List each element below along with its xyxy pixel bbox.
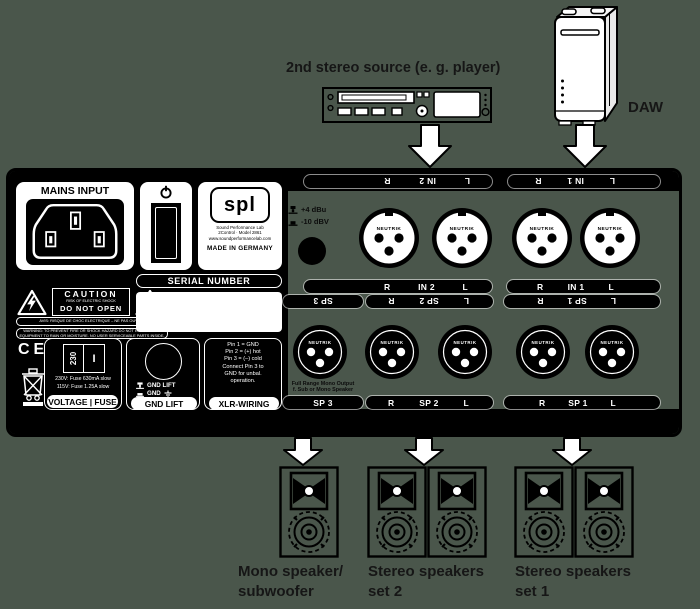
sp2-label-strip-top: L SP 2 R [366, 295, 493, 308]
in2-label-strip-top: L IN 2 R [304, 175, 492, 188]
xlr-output-sp2-l[interactable]: NEUTRIK [437, 324, 493, 380]
power-section [140, 182, 192, 270]
xlr-output-sp3[interactable]: NEUTRIK [292, 324, 348, 380]
sp3-name: SP 3 [313, 297, 332, 307]
set2-speaker-left-illustration [367, 466, 427, 558]
sp3-name: SP 3 [313, 398, 332, 408]
serial-number-label: SERIAL NUMBER [136, 274, 282, 288]
arrow-daw-to-in1 [563, 124, 607, 168]
caption-line: set 1 [515, 582, 631, 602]
sp1-name: SP 1 [568, 398, 587, 408]
caption-line: Mono speaker/ [238, 562, 343, 582]
voltage-fuse-section: 230 I 230V: Fuse 630mA slow 115V: Fuse 1… [44, 338, 122, 410]
svg-text:NEUTRIK: NEUTRIK [308, 340, 331, 345]
channel-letter: R [535, 177, 541, 187]
channel-letter: R [537, 282, 543, 292]
gnd-option: GND [147, 390, 161, 397]
level-minus10-label: -10 dBV [301, 217, 329, 226]
sp2-label-strip: R SP 2 L [366, 396, 493, 409]
in2-name: IN 2 [419, 177, 436, 187]
caution-title: CAUTION [53, 289, 129, 299]
svg-text:NEUTRIK: NEUTRIK [600, 340, 623, 345]
rear-panel: MAINS INPUT sp [6, 168, 682, 437]
svg-text:NEUTRIK: NEUTRIK [531, 340, 554, 345]
xlr-output-sp1-l[interactable]: NEUTRIK [584, 324, 640, 380]
arrow-player-to-in2 [408, 124, 452, 168]
channel-letter: L [609, 282, 615, 292]
level-switch-knob[interactable] [298, 237, 326, 265]
xlr-wiring-label: XLR-WIRING [209, 397, 279, 410]
made-in-germany: MADE IN GERMANY [198, 245, 282, 252]
in1-name: IN 1 [568, 282, 585, 292]
xlr-input-in1-r[interactable]: NEUTRIK [511, 207, 573, 269]
sp1-name: SP 1 [567, 297, 586, 307]
caption-line: subwoofer [238, 582, 343, 602]
in1-label-strip-top: L IN 1 R [508, 175, 660, 188]
svg-text:NEUTRIK: NEUTRIK [598, 226, 623, 232]
xlr-wiring-line: GND for unbal. [205, 371, 281, 378]
gnd-lift-option: GND LIFT [147, 382, 176, 389]
arrow-sp1-to-set1 [552, 437, 592, 466]
in2-label-strip: R IN 2 L [304, 280, 492, 293]
svg-text:NEUTRIK: NEUTRIK [377, 226, 402, 232]
sp2-name: SP 2 [419, 297, 438, 307]
xlr-output-sp2-r[interactable]: NEUTRIK [364, 324, 420, 380]
xlr-wiring-line: Connect Pin 3 to [205, 364, 281, 371]
mono-speaker-caption: Mono speaker/ subwoofer [238, 562, 343, 602]
exclamation-warning-icon [134, 289, 166, 316]
daw-tower-illustration [549, 3, 629, 127]
svg-text:NEUTRIK: NEUTRIK [380, 340, 403, 345]
sp3-note-line2: f. Sub or Mono Speaker [275, 387, 371, 393]
voltage-selector-value: 230 [69, 352, 78, 365]
in1-name: IN 1 [567, 177, 584, 187]
high-voltage-warning-icon [16, 289, 48, 316]
svg-text:NEUTRIK: NEUTRIK [453, 340, 476, 345]
player-illustration [322, 87, 492, 123]
set1-speaker-left-illustration [514, 466, 574, 558]
xlr-wiring-line: Pin 1 = GND [205, 342, 281, 349]
channel-letter: L [464, 297, 470, 307]
daw-label: DAW [628, 99, 663, 116]
channel-letter: L [611, 398, 617, 408]
spl-logo: spl [210, 187, 270, 223]
channel-letter: L [465, 177, 471, 187]
in2-name: IN 2 [418, 282, 435, 292]
xlr-input-in1-l[interactable]: NEUTRIK [579, 207, 641, 269]
channel-letter: R [384, 177, 390, 187]
channel-letter: R [388, 297, 394, 307]
svg-text:NEUTRIK: NEUTRIK [450, 226, 475, 232]
caption-line: set 2 [368, 582, 484, 602]
brand-line3: www.soundperformancelab.com [198, 236, 282, 241]
voltage-selector[interactable]: 230 I [63, 344, 105, 373]
xlr-input-in2-l[interactable]: NEUTRIK [431, 207, 493, 269]
in1-label-strip: R IN 1 L [507, 280, 660, 293]
warning-box: WARNING: TO PREVENT FIRE OR SHOCK HAZARD… [16, 328, 168, 339]
avis-line: AVIS: RISQUE DE CHOC ELECTRIQUE – NE PAS… [16, 317, 168, 326]
weee-bin-icon [19, 365, 47, 408]
set2-speaker-right-illustration [427, 466, 487, 558]
set1-speakers-caption: Stereo speakers set 1 [515, 562, 631, 602]
xlr-wiring-line: operation. [205, 378, 281, 385]
second-source-label: 2nd stereo source (e. g. player) [286, 60, 500, 76]
sp3-label-strip-top: SP 3 [283, 295, 363, 308]
sp1-label-strip: R SP 1 L [504, 396, 660, 409]
channel-letter: R [537, 297, 543, 307]
xlr-wiring-line: Pin 3 = (–) cold [205, 356, 281, 363]
svg-text:NEUTRIK: NEUTRIK [530, 226, 555, 232]
caption-line: Stereo speakers [368, 562, 484, 582]
channel-letter: L [464, 398, 470, 408]
sp3-label-strip: SP 3 [283, 396, 363, 409]
gnd-lift-section: GND LIFT GND GND LIFT [126, 338, 200, 410]
switch-out-icon [288, 205, 298, 214]
channel-letter: L [611, 297, 617, 307]
power-icon [159, 185, 173, 199]
iec-inlet-icon [26, 199, 124, 265]
gnd-lift-switch[interactable] [145, 343, 182, 380]
fuse-rating-115: 115V: Fuse 1.25A slow [45, 384, 121, 390]
xlr-output-sp1-r[interactable]: NEUTRIK [515, 324, 571, 380]
set1-speaker-right-illustration [574, 466, 634, 558]
mains-input-title: MAINS INPUT [16, 182, 134, 197]
level-plus4-label: +4 dBu [301, 205, 326, 214]
caption-line: Stereo speakers [515, 562, 631, 582]
channel-letter: R [539, 398, 545, 408]
caution-box: CAUTION RISK OF ELECTRIC SHOCK DO NOT OP… [52, 288, 130, 316]
xlr-wiring-section: Pin 1 = GND Pin 2 = (+) hot Pin 3 = (–) … [204, 338, 282, 410]
xlr-input-in2-r[interactable]: NEUTRIK [358, 207, 420, 269]
channel-letter: L [463, 282, 469, 292]
arrow-sp3-to-mono [283, 437, 323, 466]
arrow-sp2-to-set2 [404, 437, 444, 466]
set2-speakers-caption: Stereo speakers set 2 [368, 562, 484, 602]
caution-do-not-open: DO NOT OPEN [53, 304, 129, 313]
mains-input-section: MAINS INPUT [16, 182, 134, 270]
switch-in-icon [136, 390, 144, 397]
sp1-label-strip-top: L SP 1 R [504, 295, 660, 308]
switch-in-icon [288, 217, 298, 226]
gnd-lift-label: GND LIFT [131, 397, 197, 410]
voltage-fuse-label: VOLTAGE | FUSE [47, 395, 118, 408]
brand-plate: spl Sound Performance Lab 2Control · Mod… [198, 182, 282, 270]
switch-out-icon [136, 382, 144, 389]
mono-speaker-illustration [279, 466, 339, 558]
channel-letter: L [610, 177, 616, 187]
fuse-rating-230: 230V: Fuse 630mA slow [45, 376, 121, 382]
sp2-name: SP 2 [419, 398, 438, 408]
channel-letter: R [388, 398, 394, 408]
xlr-wiring-line: Pin 2 = (+) hot [205, 349, 281, 356]
channel-letter: R [384, 282, 390, 292]
power-switch[interactable] [151, 203, 181, 263]
iec-inlet[interactable] [26, 199, 124, 265]
hookup-diagram: 2nd stereo source (e. g. player) [0, 0, 700, 609]
voltage-selector-switch: I [84, 345, 104, 372]
